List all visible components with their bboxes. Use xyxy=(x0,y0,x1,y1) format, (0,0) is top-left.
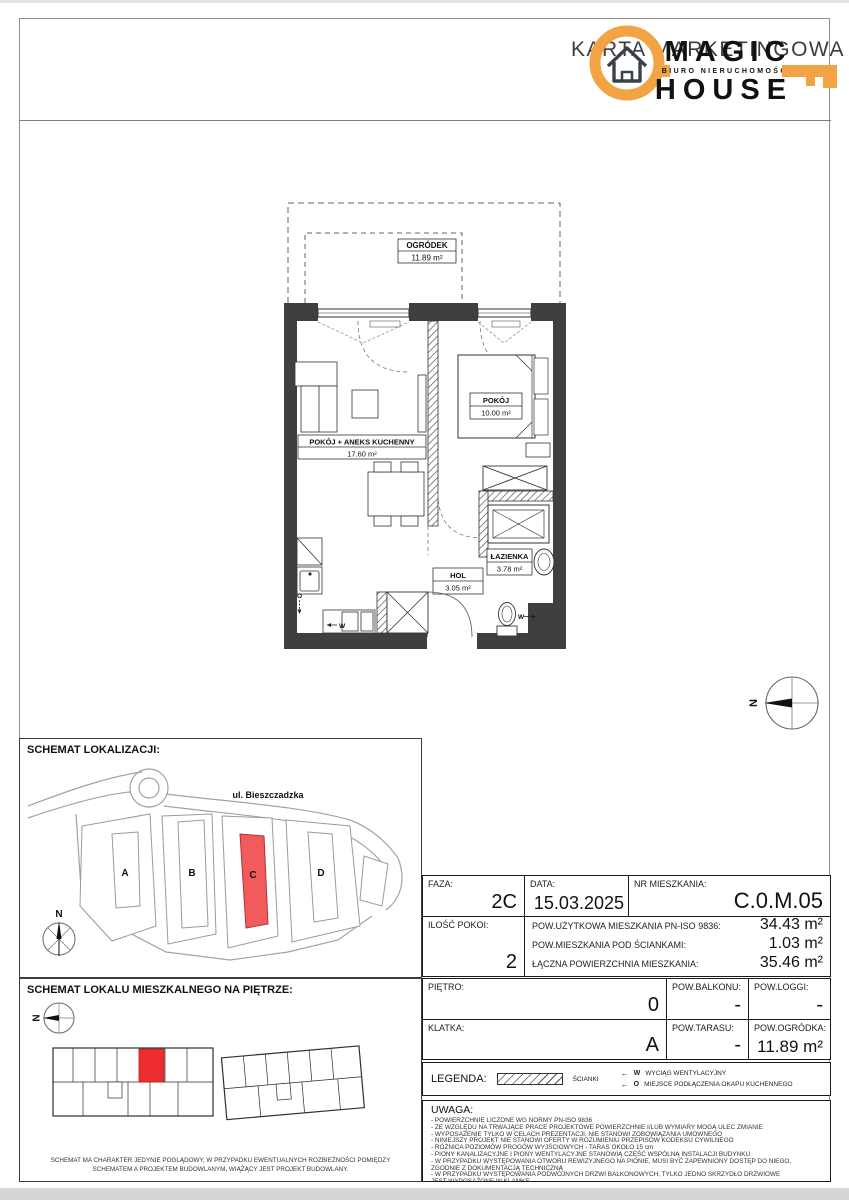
logo-key-tooth-2 xyxy=(823,77,837,88)
tv-cabinet xyxy=(418,375,426,432)
apartment-floorplan: OGRÓDEK 11.89 m² xyxy=(270,185,580,665)
living-room-label: POKÓJ + ANEKS KUCHENNY 17.60 m² xyxy=(298,435,426,459)
logo-key-ring-icon xyxy=(595,31,659,95)
building-a-label: A xyxy=(121,868,128,879)
bathroom-label: ŁAZIENKA 3.78 m² xyxy=(487,549,532,575)
north-compass-main: N xyxy=(742,668,837,738)
faza-cell: FAZA: 2C xyxy=(423,876,524,916)
svg-text:OGRÓDEK: OGRÓDEK xyxy=(406,241,448,250)
area-row-uzytkowa: POW.UŻYTKOWA MIESZKANIA PN-ISO 9836: 34.… xyxy=(532,916,823,935)
legend-vent-o: ← O MIEJSCE PODŁĄCZENIA OKAPU KUCHENNEGO xyxy=(621,1080,793,1089)
svg-text:11.89 m²: 11.89 m² xyxy=(412,254,443,263)
location-schematic-title: SCHEMAT LOKALIZACJI: xyxy=(20,739,421,756)
floor-schematic-panel: SCHEMAT LOKALU MIESZKALNEGO NA PIĘTRZE: … xyxy=(19,978,422,1182)
uwaga-line: JEST WYPOSAŻONE W KLAMKĘ xyxy=(431,1179,822,1182)
svg-text:W: W xyxy=(518,614,525,621)
logo-word-house: HOUSE xyxy=(655,74,793,106)
wardrobe-entry xyxy=(377,592,428,633)
svg-text:17.60 m²: 17.60 m² xyxy=(347,450,377,459)
svg-text:POKÓJ + ANEKS KUCHENNY: POKÓJ + ANEKS KUCHENNY xyxy=(309,438,414,447)
details-table-main: FAZA: 2C DATA: 15.03.2025 NR MIESZKANIA:… xyxy=(422,875,831,977)
pow-loggi-cell: POW.LOGGI: - xyxy=(748,979,830,1019)
svg-text:POKÓJ: POKÓJ xyxy=(483,396,509,405)
bathtub xyxy=(488,505,549,543)
building-blocks xyxy=(80,814,388,948)
pietro-cell: PIĘTRO: 0 xyxy=(423,979,666,1019)
kitchen-units xyxy=(297,538,375,633)
entrance-door xyxy=(427,592,472,637)
building-d-label: D xyxy=(317,868,324,879)
legend-vent-w: ← W WYCIĄG WENTYLACYJNY xyxy=(621,1069,793,1078)
svg-text:W: W xyxy=(339,623,346,630)
coffee-table xyxy=(352,390,378,418)
floor-schematic-caption-1: SCHEMAT MA CHARAKTER JEDYNIE POGLĄDOWY, … xyxy=(20,1157,421,1165)
nr-mieszkania-cell: NR MIESZKANIA: C.0.M.05 xyxy=(628,876,830,916)
bedroom-label: POKÓJ 10.00 m² xyxy=(470,393,522,419)
bedroom-door-swing xyxy=(438,493,483,538)
scan-edge-top xyxy=(0,0,849,3)
marketing-card-page: { "header": { "title": "KARTA MARKETINGO… xyxy=(0,0,849,1200)
uwaga-notes: UWAGA: - POWIERZCHNIE LICZONE WG NORMY P… xyxy=(422,1100,831,1182)
header-divider xyxy=(19,120,831,121)
toilet xyxy=(497,603,517,637)
building-b-label: B xyxy=(188,868,195,879)
svg-text:HOL: HOL xyxy=(450,571,466,580)
north-compass-floor: N xyxy=(32,1003,74,1033)
walls-hatch-swatch xyxy=(497,1073,563,1085)
area-row-laczna: ŁĄCZNA POWIERZCHNIA MIESZKANIA: 35.46 m² xyxy=(532,954,823,973)
svg-text:3.78 m²: 3.78 m² xyxy=(497,565,523,574)
wardrobe-bedroom xyxy=(483,466,547,490)
nightstand xyxy=(526,443,550,457)
sofa xyxy=(295,362,337,432)
ilosc-pokoi-cell: ILOŚĆ POKOI: 2 xyxy=(423,917,524,976)
svg-text:N: N xyxy=(55,909,62,920)
svg-text:ŁAZIENKA: ŁAZIENKA xyxy=(491,552,529,561)
logo-key-shaft-right xyxy=(782,65,837,77)
klatka-cell: KLATKA: A xyxy=(423,1020,666,1059)
scan-edge-bottom xyxy=(0,1188,849,1200)
legend-bar: LEGENDA: ŚCIANKI ← W WYCIĄG WENTYLACYJNY… xyxy=(422,1062,831,1096)
pow-ogrodka-cell: POW.OGRÓDKA: 11.89 m² xyxy=(748,1020,830,1059)
dining-table xyxy=(368,462,424,526)
left-arrow-icon: ← xyxy=(621,1069,629,1078)
hood-marker: O xyxy=(297,593,302,614)
svg-text:N: N xyxy=(748,699,760,707)
left-arrow-icon: ← xyxy=(621,1080,629,1089)
building-outline-right xyxy=(221,1046,364,1120)
location-schematic-panel: SCHEMAT LOKALIZACJI: ul. Bieszczadzka xyxy=(19,738,422,978)
site-plan: ul. Bieszczadzka A B C D xyxy=(20,756,421,974)
north-compass-site: N xyxy=(43,909,75,956)
house-icon xyxy=(608,48,646,81)
svg-text:N: N xyxy=(32,1014,43,1021)
svg-text:10.00 m²: 10.00 m² xyxy=(481,409,511,418)
hall-label: HOL 3.05 m² xyxy=(433,568,483,594)
area-row-scianki: POW.MIESZKANIA POD ŚCIANKAMI: 1.03 m² xyxy=(532,935,823,954)
logo-key-tooth-1 xyxy=(806,77,815,86)
data-cell: DATA: 15.03.2025 xyxy=(524,876,628,916)
washbasin xyxy=(534,549,554,575)
radiators xyxy=(370,321,520,327)
pow-balkonu-cell: POW.BALKONU: - xyxy=(666,979,748,1019)
partition-wall xyxy=(428,321,438,526)
floor-level-plan: N xyxy=(20,996,421,1156)
floor-schematic-caption-2: SCHEMATEM A PROJEKTEM BUDOWLANYM, WIĄŻĄC… xyxy=(20,1166,421,1174)
svg-text:3.05 m²: 3.05 m² xyxy=(445,584,471,593)
areas-cell: POW.UŻYTKOWA MIESZKANIA PN-ISO 9836: 34.… xyxy=(524,917,830,976)
logo-word-magic: MAGIC xyxy=(665,36,792,68)
unit-highlight xyxy=(139,1049,164,1082)
street-label: ul. Bieszczadzka xyxy=(232,790,304,800)
magic-house-logo: MAGIC BIURO NIERUCHOMOŚCI HOUSE xyxy=(570,25,840,120)
building-outline-left xyxy=(53,1048,213,1116)
svg-text:O: O xyxy=(297,593,302,600)
floor-schematic-title: SCHEMAT LOKALU MIESZKALNEGO NA PIĘTRZE: xyxy=(20,979,421,996)
details-table-secondary: PIĘTRO: 0 POW.BALKONU: - POW.LOGGI: - KL… xyxy=(422,978,831,1060)
garden-label: OGRÓDEK 11.89 m² xyxy=(398,239,456,263)
pow-tarasu-cell: POW.TARASU: - xyxy=(666,1020,748,1059)
building-c-label: C xyxy=(249,870,256,881)
